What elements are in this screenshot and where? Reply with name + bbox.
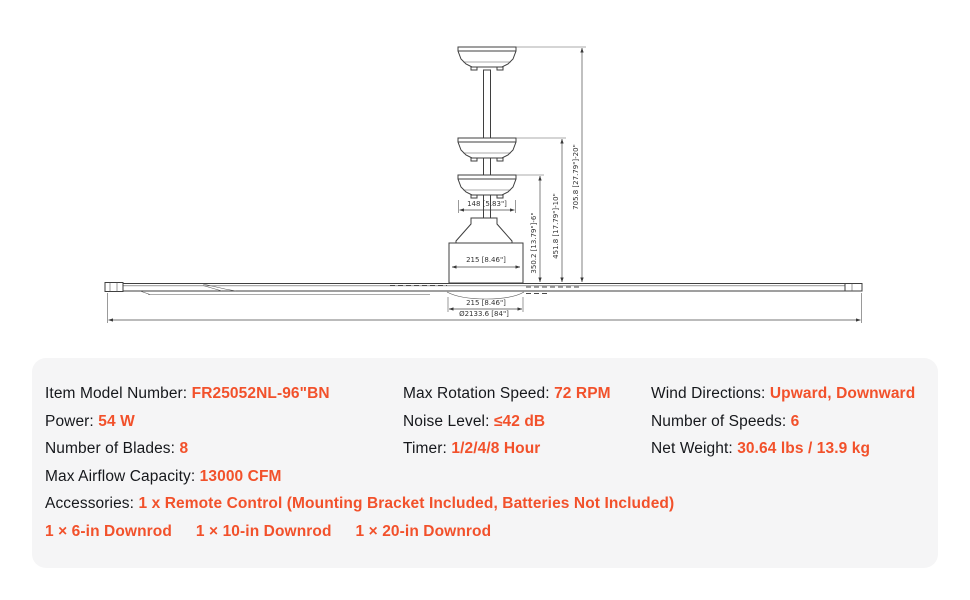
spec-label: Noise Level: bbox=[403, 413, 494, 430]
spec-label: Number of Speeds: bbox=[651, 413, 791, 430]
spec-value: 6 bbox=[791, 413, 800, 430]
specs-column-3: Wind Directions: Upward, Downward Number… bbox=[651, 380, 915, 463]
canopy-20in-position bbox=[458, 47, 516, 70]
downrod-item-10in: 1 × 10-in Downrod bbox=[196, 518, 332, 546]
fan-dimension-diagram: 148 [5.83"] 215 [8.46"] bbox=[0, 0, 970, 345]
spec-value: 1 x Remote Control (Mounting Bracket Inc… bbox=[138, 495, 674, 512]
spec-label: Net Weight: bbox=[651, 440, 737, 457]
spec-noise-level: Noise Level: ≤42 dB bbox=[403, 408, 611, 436]
height-dimensions: 350.2 [13.79"]-6" 451.8 [17.79"]-10" 705… bbox=[516, 47, 586, 282]
fan-blades bbox=[105, 283, 862, 300]
spec-accessories: Accessories: 1 x Remote Control (Mountin… bbox=[45, 490, 674, 518]
fan-diagram-svg: 148 [5.83"] 215 [8.46"] bbox=[0, 0, 970, 345]
spec-label: Item Model Number: bbox=[45, 385, 192, 402]
spec-value: 72 RPM bbox=[554, 385, 611, 402]
motor-housing: 215 [8.46"] bbox=[449, 218, 523, 283]
spec-max-rotation-speed: Max Rotation Speed: 72 RPM bbox=[403, 380, 611, 408]
spec-label: Number of Blades: bbox=[45, 440, 179, 457]
spec-value: 54 W bbox=[98, 413, 135, 430]
spec-label: Timer: bbox=[403, 440, 451, 457]
spec-label: Max Airflow Capacity: bbox=[45, 468, 200, 485]
specs-panel: Item Model Number: FR25052NL-96"BN Power… bbox=[32, 358, 938, 568]
canopy-6in-position bbox=[458, 175, 516, 198]
product-spec-sheet: 148 [5.83"] 215 [8.46"] bbox=[0, 0, 970, 600]
specs-column-1: Item Model Number: FR25052NL-96"BN Power… bbox=[45, 380, 330, 490]
spec-label: Max Rotation Speed: bbox=[403, 385, 554, 402]
spec-label: Accessories: bbox=[45, 495, 138, 512]
dim-canopy-width-label: 148 [5.83"] bbox=[467, 200, 507, 208]
spec-label: Power: bbox=[45, 413, 98, 430]
spec-timer: Timer: 1/2/4/8 Hour bbox=[403, 435, 611, 463]
spec-value: 13000 CFM bbox=[200, 468, 282, 485]
spec-value: ≤42 dB bbox=[494, 413, 545, 430]
dim-bottom-width-label: 215 [8.46"] bbox=[466, 299, 506, 307]
dim-height-10in-label: 451.8 [17.79"]-10" bbox=[552, 193, 560, 259]
blade-diameter-dimension: Ø2133.6 [84"] bbox=[108, 293, 862, 323]
spec-net-weight: Net Weight: 30.64 lbs / 13.9 kg bbox=[651, 435, 915, 463]
spec-value: 1/2/4/8 Hour bbox=[451, 440, 540, 457]
spec-power: Power: 54 W bbox=[45, 408, 330, 436]
dim-height-6in-label: 350.2 [13.79"]-6" bbox=[530, 212, 538, 273]
spec-label: Wind Directions: bbox=[651, 385, 770, 402]
dim-motor-width-label: 215 [8.46"] bbox=[466, 256, 506, 264]
dim-blade-diameter-label: Ø2133.6 [84"] bbox=[459, 310, 509, 318]
downrod-item-20in: 1 × 20-in Downrod bbox=[356, 518, 492, 546]
downrod-item-6in: 1 × 6-in Downrod bbox=[45, 518, 172, 546]
spec-item-model-number: Item Model Number: FR25052NL-96"BN bbox=[45, 380, 330, 408]
spec-value: 30.64 lbs / 13.9 kg bbox=[737, 440, 870, 457]
spec-downrods: 1 × 6-in Downrod 1 × 10-in Downrod 1 × 2… bbox=[45, 518, 491, 546]
specs-column-2: Max Rotation Speed: 72 RPM Noise Level: … bbox=[403, 380, 611, 463]
spec-number-of-speeds: Number of Speeds: 6 bbox=[651, 408, 915, 436]
spec-number-of-blades: Number of Blades: 8 bbox=[45, 435, 330, 463]
spec-wind-directions: Wind Directions: Upward, Downward bbox=[651, 380, 915, 408]
canopy-10in-position bbox=[458, 138, 516, 161]
dim-height-20in-label: 705.8 [27.79"]-20" bbox=[572, 144, 580, 210]
spec-value: FR25052NL-96"BN bbox=[192, 385, 330, 402]
spec-max-airflow-capacity: Max Airflow Capacity: 13000 CFM bbox=[45, 463, 330, 491]
spec-value: Upward, Downward bbox=[770, 385, 915, 402]
spec-value: 8 bbox=[179, 440, 188, 457]
